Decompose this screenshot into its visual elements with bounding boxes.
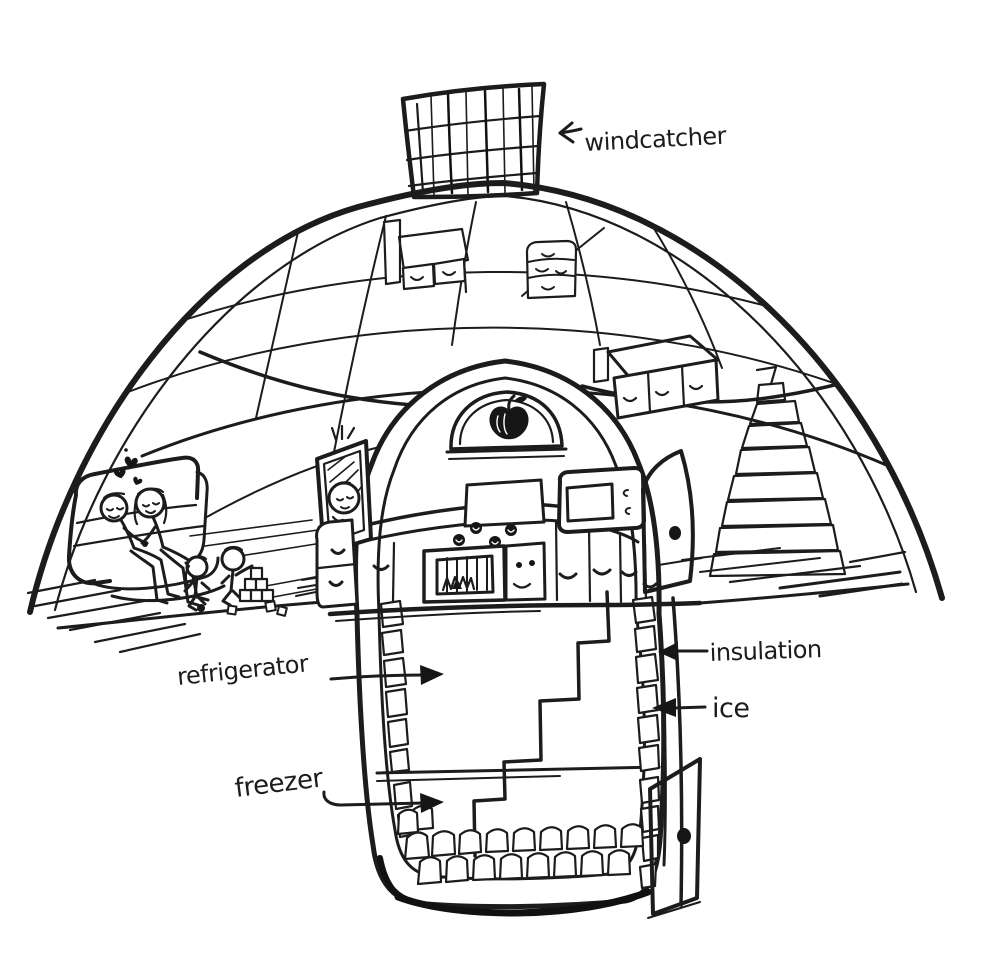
ice-label: ice	[652, 693, 749, 724]
sketch-page: windcatcher refrigerator insulation ice …	[0, 0, 1000, 964]
windcatcher-label: windcatcher	[560, 122, 727, 157]
pine-tree	[710, 367, 845, 576]
bed	[384, 220, 468, 292]
door-knob-icon	[677, 828, 691, 844]
oven	[424, 546, 505, 602]
freezer-text: freezer	[233, 763, 325, 804]
microwave	[559, 468, 644, 532]
door-knob-icon	[669, 526, 681, 540]
couch	[69, 458, 224, 601]
windcatcher-tower	[403, 84, 544, 197]
insulation-text: insulation	[709, 635, 822, 667]
ground-left-hatch	[28, 520, 336, 652]
yakhchal-sketch: windcatcher refrigerator insulation ice …	[0, 0, 1000, 964]
left-arrow-icon	[658, 642, 707, 661]
side-cabinet	[296, 520, 357, 607]
insulation-label: insulation	[658, 635, 822, 667]
dresser	[527, 241, 576, 298]
windcatcher-text: windcatcher	[584, 122, 727, 157]
refrigerator-text: refrigerator	[176, 649, 310, 691]
left-arrow-icon	[560, 123, 581, 142]
ice-text: ice	[712, 693, 749, 724]
